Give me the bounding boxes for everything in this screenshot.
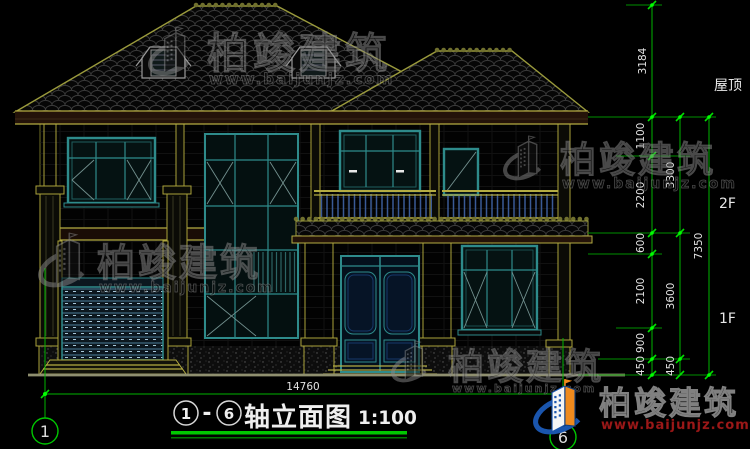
dim-total-width: 14760	[286, 381, 319, 393]
axis-bubble-1: 1	[32, 418, 58, 444]
dim-plinth: 450	[635, 356, 647, 376]
dim-roof-rise: 3184	[637, 47, 649, 74]
canopy-roof	[292, 219, 592, 243]
stairwell-window	[205, 134, 298, 338]
window-2f-right	[444, 149, 478, 195]
window-2f-left	[64, 138, 159, 207]
cad-elevation-screenshot: 3184 1100 2200 600 2100 900 450 3300 360…	[0, 0, 750, 449]
watermark-url: www.baijunjz.com	[209, 70, 394, 88]
dim-canopy: 600	[635, 233, 647, 253]
watermark-brand: 柏竣建筑	[97, 241, 261, 285]
level-label-roof: 屋顶	[714, 78, 742, 94]
elevation-canvas: 3184 1100 2200 600 2100 900 450 3300 360…	[0, 0, 750, 449]
drawing-title: 1 - 6 轴立面图 1:100	[171, 401, 417, 439]
level-label-1f: 1F	[719, 311, 736, 327]
window-1f-right	[458, 246, 541, 335]
window-handle	[396, 170, 404, 173]
window-2f-center	[340, 131, 420, 191]
title-scale: 1:100	[358, 408, 417, 429]
title-underline-thin	[171, 437, 407, 439]
window-handle	[349, 170, 357, 173]
title-name: 轴立面图	[244, 402, 352, 433]
watermark-brand: 柏竣建筑	[560, 140, 716, 181]
footer-brand-url: www.baijunjz.com	[601, 418, 750, 433]
dim-overall-height: 7350	[693, 233, 705, 260]
watermark-url: www.baijunjz.com	[562, 176, 737, 192]
watermark-bottom-center: 柏竣建筑 www.baijunjz.com	[389, 341, 604, 395]
balcony-railing-right	[442, 191, 558, 218]
title-axis-from: 1	[181, 405, 191, 423]
title-axis-to: 6	[224, 405, 234, 423]
footer-brand-name: 柏竣建筑	[599, 384, 739, 422]
garage-ramp	[40, 360, 186, 374]
dim-plinth-2: 450	[665, 356, 677, 376]
eave-fascia	[15, 111, 588, 124]
axis-number-left: 1	[40, 422, 50, 441]
watermark-url: www.baijunjz.com	[99, 280, 274, 296]
dim-f1-total: 3600	[665, 283, 677, 310]
brand-logo-footer: 柏竣建筑 www.baijunjz.com	[530, 379, 749, 439]
title-underline	[171, 431, 407, 435]
balcony-railing-center	[314, 191, 436, 218]
title-separator: -	[202, 401, 211, 426]
dim-sill: 900	[635, 333, 647, 353]
level-label-2f: 2F	[719, 196, 736, 212]
dim-f1-main: 2100	[635, 278, 647, 305]
